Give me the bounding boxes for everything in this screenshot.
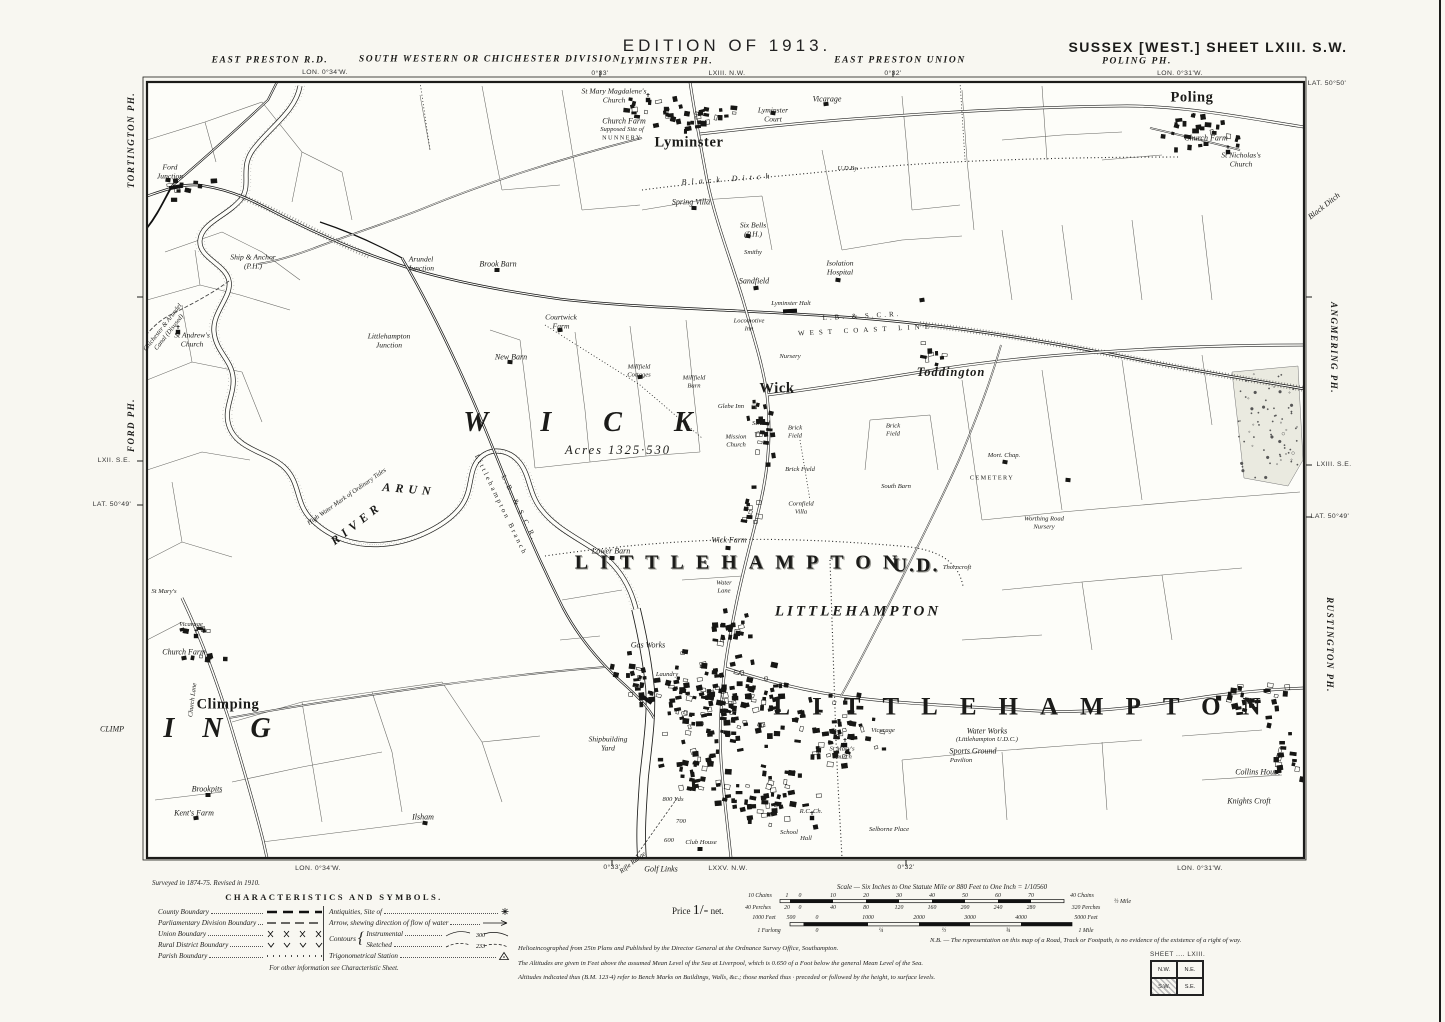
legend-row-rural-district: Rural District Boundary xyxy=(158,939,323,950)
scale-tick: 40 xyxy=(830,905,836,911)
sheet-key-cell-ne: N.E. xyxy=(1177,961,1203,978)
legend-characteristics: CHARACTERISTICS AND SYMBOLS. County Boun… xyxy=(158,892,510,972)
scale-tick: 1 xyxy=(786,893,789,899)
sheet-key-cell-se: S.E. xyxy=(1177,978,1203,995)
sheet-key-label: SHEET .... LXIII. xyxy=(1150,951,1205,958)
legend-label: Union Boundary xyxy=(158,930,206,938)
legend-label: Sketched xyxy=(366,941,392,949)
legend-right-column: Antiquities, Site of Arrow, shewing dire… xyxy=(323,906,510,961)
survey-note: Surveyed in 1874-75. Revised in 1910. xyxy=(152,879,260,887)
scale-tick: 40 Perches xyxy=(745,905,771,911)
scale-tick: 3000 xyxy=(964,915,976,921)
price-amount: 1/- xyxy=(693,903,709,918)
scale-tick: 30 xyxy=(896,893,902,899)
legend-row-trig: Trigonometrical Station xyxy=(329,950,510,961)
scale-tick: 0 xyxy=(816,915,819,921)
price-suffix: net. xyxy=(711,906,724,916)
note-altitudes-1: The Altitudes are given in Feet above th… xyxy=(518,960,923,967)
scale-tick: 1000 xyxy=(862,915,874,921)
sheet-key: SHEET .... LXIII. N.W. N.E. S.W. S.E. xyxy=(1150,951,1205,996)
parish-boundary-symbol xyxy=(265,953,323,959)
scale-tick: 120 xyxy=(895,905,904,911)
scale-tick: 80 xyxy=(863,905,869,911)
legend-left-column: County Boundary Parliamentary Division B… xyxy=(158,906,323,961)
legend-label: Instrumental xyxy=(366,930,403,938)
legend-label: Contours xyxy=(329,935,356,943)
legend-row-arrow: Arrow, shewing direction of flow of wate… xyxy=(329,917,510,928)
scale-tick: 70 xyxy=(1028,893,1034,899)
scale-tick: 0 xyxy=(816,928,819,934)
scale-tick: 160 xyxy=(928,905,937,911)
scale-tick: 2000 xyxy=(913,915,925,921)
sheet-key-grid: N.W. N.E. S.W. S.E. xyxy=(1150,960,1204,996)
union-boundary-symbol xyxy=(265,930,323,938)
trig-station-icon xyxy=(498,951,510,961)
parliamentary-boundary-symbol xyxy=(265,920,323,926)
legend-title: CHARACTERISTICS AND SYMBOLS. xyxy=(158,892,510,902)
legend-row-county: County Boundary xyxy=(158,906,323,917)
legend-row-parish: Parish Boundary xyxy=(158,950,323,961)
scale-tick: 240 xyxy=(994,905,1003,911)
scale-tick: 0 xyxy=(799,893,802,899)
scale-title: Scale — Six Inches to One Statute Mile o… xyxy=(770,883,1114,891)
scale-tick: ¼ xyxy=(879,928,883,934)
svg-text:233: 233 xyxy=(476,944,485,950)
half-mile-label: ½ Mile xyxy=(1114,899,1131,905)
legend-label: Parliamentary Division Boundary xyxy=(158,919,256,927)
legend-label: Antiquities, Site of xyxy=(329,908,382,916)
price-prefix: Price xyxy=(672,906,691,916)
legend-row-union: Union Boundary xyxy=(158,928,323,939)
rural-district-boundary-symbol xyxy=(265,941,323,949)
woodland-patch xyxy=(1232,366,1303,486)
scale-tick: 50 xyxy=(962,893,968,899)
scale-tick: 1 Mile xyxy=(1079,928,1094,934)
map-artwork xyxy=(0,0,1445,1022)
sheet-key-cell-nw: N.W. xyxy=(1151,961,1177,978)
legend-label: Rural District Boundary xyxy=(158,941,228,949)
scale-tick: 1000 Feet xyxy=(752,915,775,921)
legend-row-contour-sketched: Sketched 233 xyxy=(366,939,510,950)
scale-tick: 280 xyxy=(1027,905,1036,911)
contour-sketched-symbol: 233 xyxy=(444,939,510,951)
legend-row-parliamentary: Parliamentary Division Boundary xyxy=(158,917,323,928)
scale-tick: 40 Chains xyxy=(1070,893,1094,899)
scale-tick: 20 xyxy=(784,905,790,911)
legend-label: Trigonometrical Station xyxy=(329,952,398,960)
scale-tick: 4000 xyxy=(1015,915,1027,921)
scale-tick: 320 Perches xyxy=(1072,905,1101,911)
legend-row-contour-instrumental: Instrumental 300 xyxy=(366,928,510,939)
scale-tick: 10 Chains xyxy=(748,893,772,899)
legend-label: County Boundary xyxy=(158,908,209,916)
scale-tick: 60 xyxy=(995,893,1001,899)
os-map-sheet: EDITION OF 1913.SUSSEX [WEST.] SHEET LXI… xyxy=(0,0,1445,1022)
legend-row-antiquities: Antiquities, Site of xyxy=(329,906,510,917)
scale-tick: 10 xyxy=(830,893,836,899)
scale-tick: 5000 Feet xyxy=(1074,915,1097,921)
legend-label: Arrow, shewing direction of flow of wate… xyxy=(329,919,448,927)
antiquity-icon xyxy=(500,907,510,916)
scale-tick: 20 xyxy=(863,893,869,899)
scale-tick: 40 xyxy=(929,893,935,899)
flow-arrow-icon xyxy=(482,919,510,927)
legend-label: Parish Boundary xyxy=(158,952,207,960)
scale-tick: 500 xyxy=(787,915,796,921)
scale-tick: 200 xyxy=(961,905,970,911)
sheet-key-cell-sw: S.W. xyxy=(1151,978,1177,995)
scale-tick: 0 xyxy=(799,905,802,911)
brace-glyph: { xyxy=(358,930,364,948)
scale-tick: ¾ xyxy=(1006,928,1010,934)
legend-footnote: For other information see Characteristic… xyxy=(158,965,510,972)
note-nb: N.B. — The representation on this map of… xyxy=(930,937,1241,944)
legend-row-contours: Contours { Instrumental 300 Sketched 233 xyxy=(329,928,510,950)
note-altitudes-2: Altitudes indicated thus (B.M. 123·4) re… xyxy=(518,974,935,981)
price-note: Price 1/- net. xyxy=(672,903,724,919)
scale-tick: 1 Furlong xyxy=(757,928,780,934)
note-heliozincographed: Heliozincographed from 25in Plans and Pu… xyxy=(518,945,838,952)
county-boundary-symbol xyxy=(265,909,323,915)
scale-tick: ½ xyxy=(942,928,946,934)
